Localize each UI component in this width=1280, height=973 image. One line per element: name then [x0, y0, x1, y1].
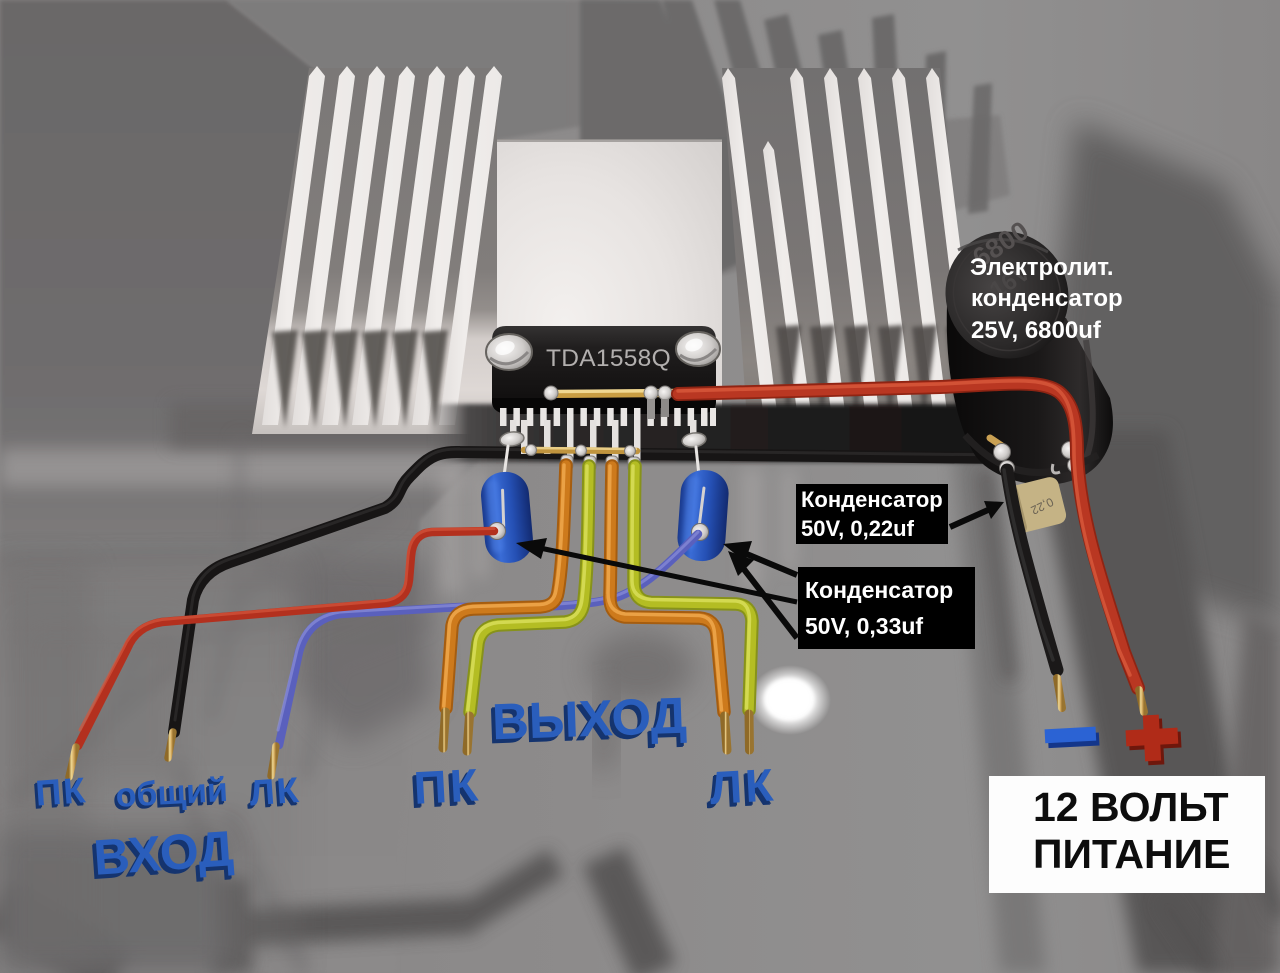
svg-text:ПК: ПК — [412, 758, 482, 813]
svg-text:Электролит.: Электролит. — [970, 254, 1114, 281]
svg-text:Конденсатор: Конденсатор — [801, 487, 943, 512]
svg-text:общий: общий — [115, 771, 229, 815]
svg-text:конденсатор: конденсатор — [971, 285, 1123, 312]
svg-text:Конденсатор: Конденсатор — [805, 577, 953, 603]
svg-text:50V, 0,33uf: 50V, 0,33uf — [805, 613, 923, 639]
svg-text:50V, 0,22uf: 50V, 0,22uf — [801, 516, 915, 541]
svg-text:ВЫХОД: ВЫХОД — [491, 687, 688, 751]
svg-text:ПК: ПК — [34, 769, 89, 814]
svg-text:ВХОД: ВХОД — [92, 820, 236, 886]
svg-text:ЛК: ЛК — [248, 769, 302, 813]
svg-text:ПИТАНИЕ: ПИТАНИЕ — [1033, 831, 1230, 877]
svg-text:12 ВОЛЬТ: 12 ВОЛЬТ — [1033, 784, 1229, 830]
svg-text:25V, 6800uf: 25V, 6800uf — [971, 317, 1102, 344]
svg-text:ЛК: ЛК — [708, 758, 777, 813]
svg-text:TDA1558Q: TDA1558Q — [546, 345, 671, 372]
